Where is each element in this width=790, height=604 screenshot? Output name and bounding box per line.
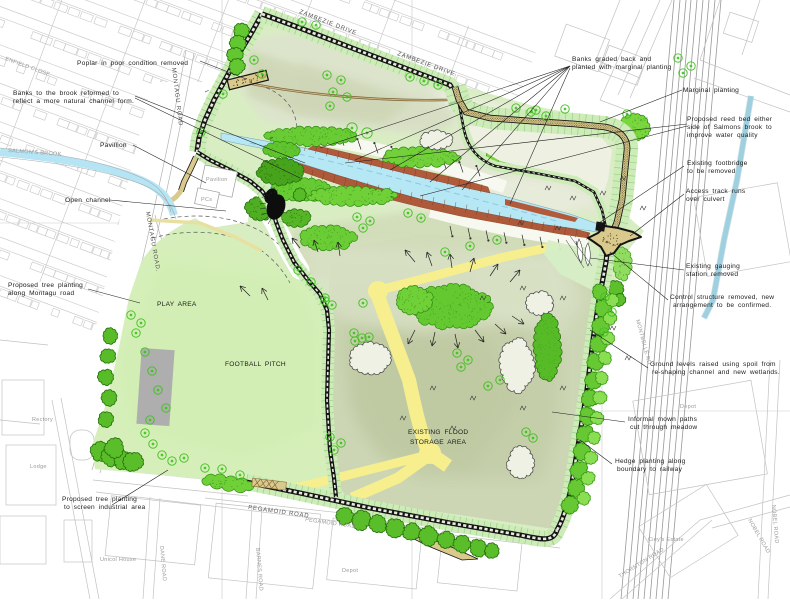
svg-text:re-shaping channel and new wet: re-shaping channel and new wetlands. <box>652 369 780 376</box>
svg-text:Pavilion: Pavilion <box>206 177 228 183</box>
svg-text:Proposed reed bed either: Proposed reed bed either <box>687 116 773 123</box>
svg-text:Proposed tree planting: Proposed tree planting <box>8 282 83 289</box>
svg-text:Hedge planting along: Hedge planting along <box>615 458 686 465</box>
svg-text:side of Salmons brook to: side of Salmons brook to <box>687 124 772 131</box>
svg-text:Depot: Depot <box>680 404 696 410</box>
svg-text:to screen industrial area: to screen industrial area <box>64 504 146 511</box>
svg-text:arrangement to be confirmed.: arrangement to be confirmed. <box>673 302 771 309</box>
svg-text:Existing gauging: Existing gauging <box>686 263 740 270</box>
svg-text:Ground levels raised using spo: Ground levels raised using spoil from <box>650 361 776 368</box>
svg-text:Depot: Depot <box>342 568 358 574</box>
svg-text:PLAY AREA: PLAY AREA <box>157 301 197 308</box>
svg-text:boundary to railway: boundary to railway <box>617 466 683 473</box>
svg-text:along Montagu road: along Montagu road <box>8 290 74 297</box>
svg-text:Rectory: Rectory <box>32 417 53 423</box>
svg-text:Banks to the brook reformed to: Banks to the brook reformed to <box>13 90 119 97</box>
svg-text:station removed: station removed <box>686 271 738 278</box>
svg-text:Ciey's Estate: Ciey's Estate <box>648 537 684 543</box>
svg-text:over culvert: over culvert <box>686 196 725 203</box>
svg-text:Access track runs: Access track runs <box>686 188 746 195</box>
svg-text:Existing footbridge: Existing footbridge <box>687 160 748 167</box>
svg-text:PCs: PCs <box>201 197 212 203</box>
svg-text:Banks graded back and: Banks graded back and <box>572 56 651 63</box>
svg-text:reflect a more natural channel: reflect a more natural channel form. <box>13 98 134 105</box>
svg-text:cut through meadow: cut through meadow <box>630 424 697 431</box>
svg-text:Informal mown paths: Informal mown paths <box>628 416 698 423</box>
svg-text:Open channel: Open channel <box>65 197 111 204</box>
svg-text:Lodge: Lodge <box>30 464 47 470</box>
svg-text:FOOTBALL PITCH: FOOTBALL PITCH <box>225 361 286 368</box>
svg-text:Control structure removed, new: Control structure removed, new <box>670 294 774 301</box>
svg-text:Pavillion: Pavillion <box>100 142 127 149</box>
svg-text:improve water quality: improve water quality <box>687 132 758 139</box>
svg-text:Poplar in poor condition remov: Poplar in poor condition removed <box>77 60 188 67</box>
svg-text:EXISTING FLOOD: EXISTING FLOOD <box>408 429 468 436</box>
svg-text:Unicol House: Unicol House <box>100 557 136 563</box>
svg-text:Proposed tree planting: Proposed tree planting <box>62 496 137 503</box>
svg-text:to be removed: to be removed <box>687 168 736 175</box>
svg-text:Marginal planting: Marginal planting <box>683 87 739 94</box>
svg-text:planted with marginal planting: planted with marginal planting <box>572 64 672 71</box>
svg-text:STORAGE AREA: STORAGE AREA <box>410 439 466 446</box>
